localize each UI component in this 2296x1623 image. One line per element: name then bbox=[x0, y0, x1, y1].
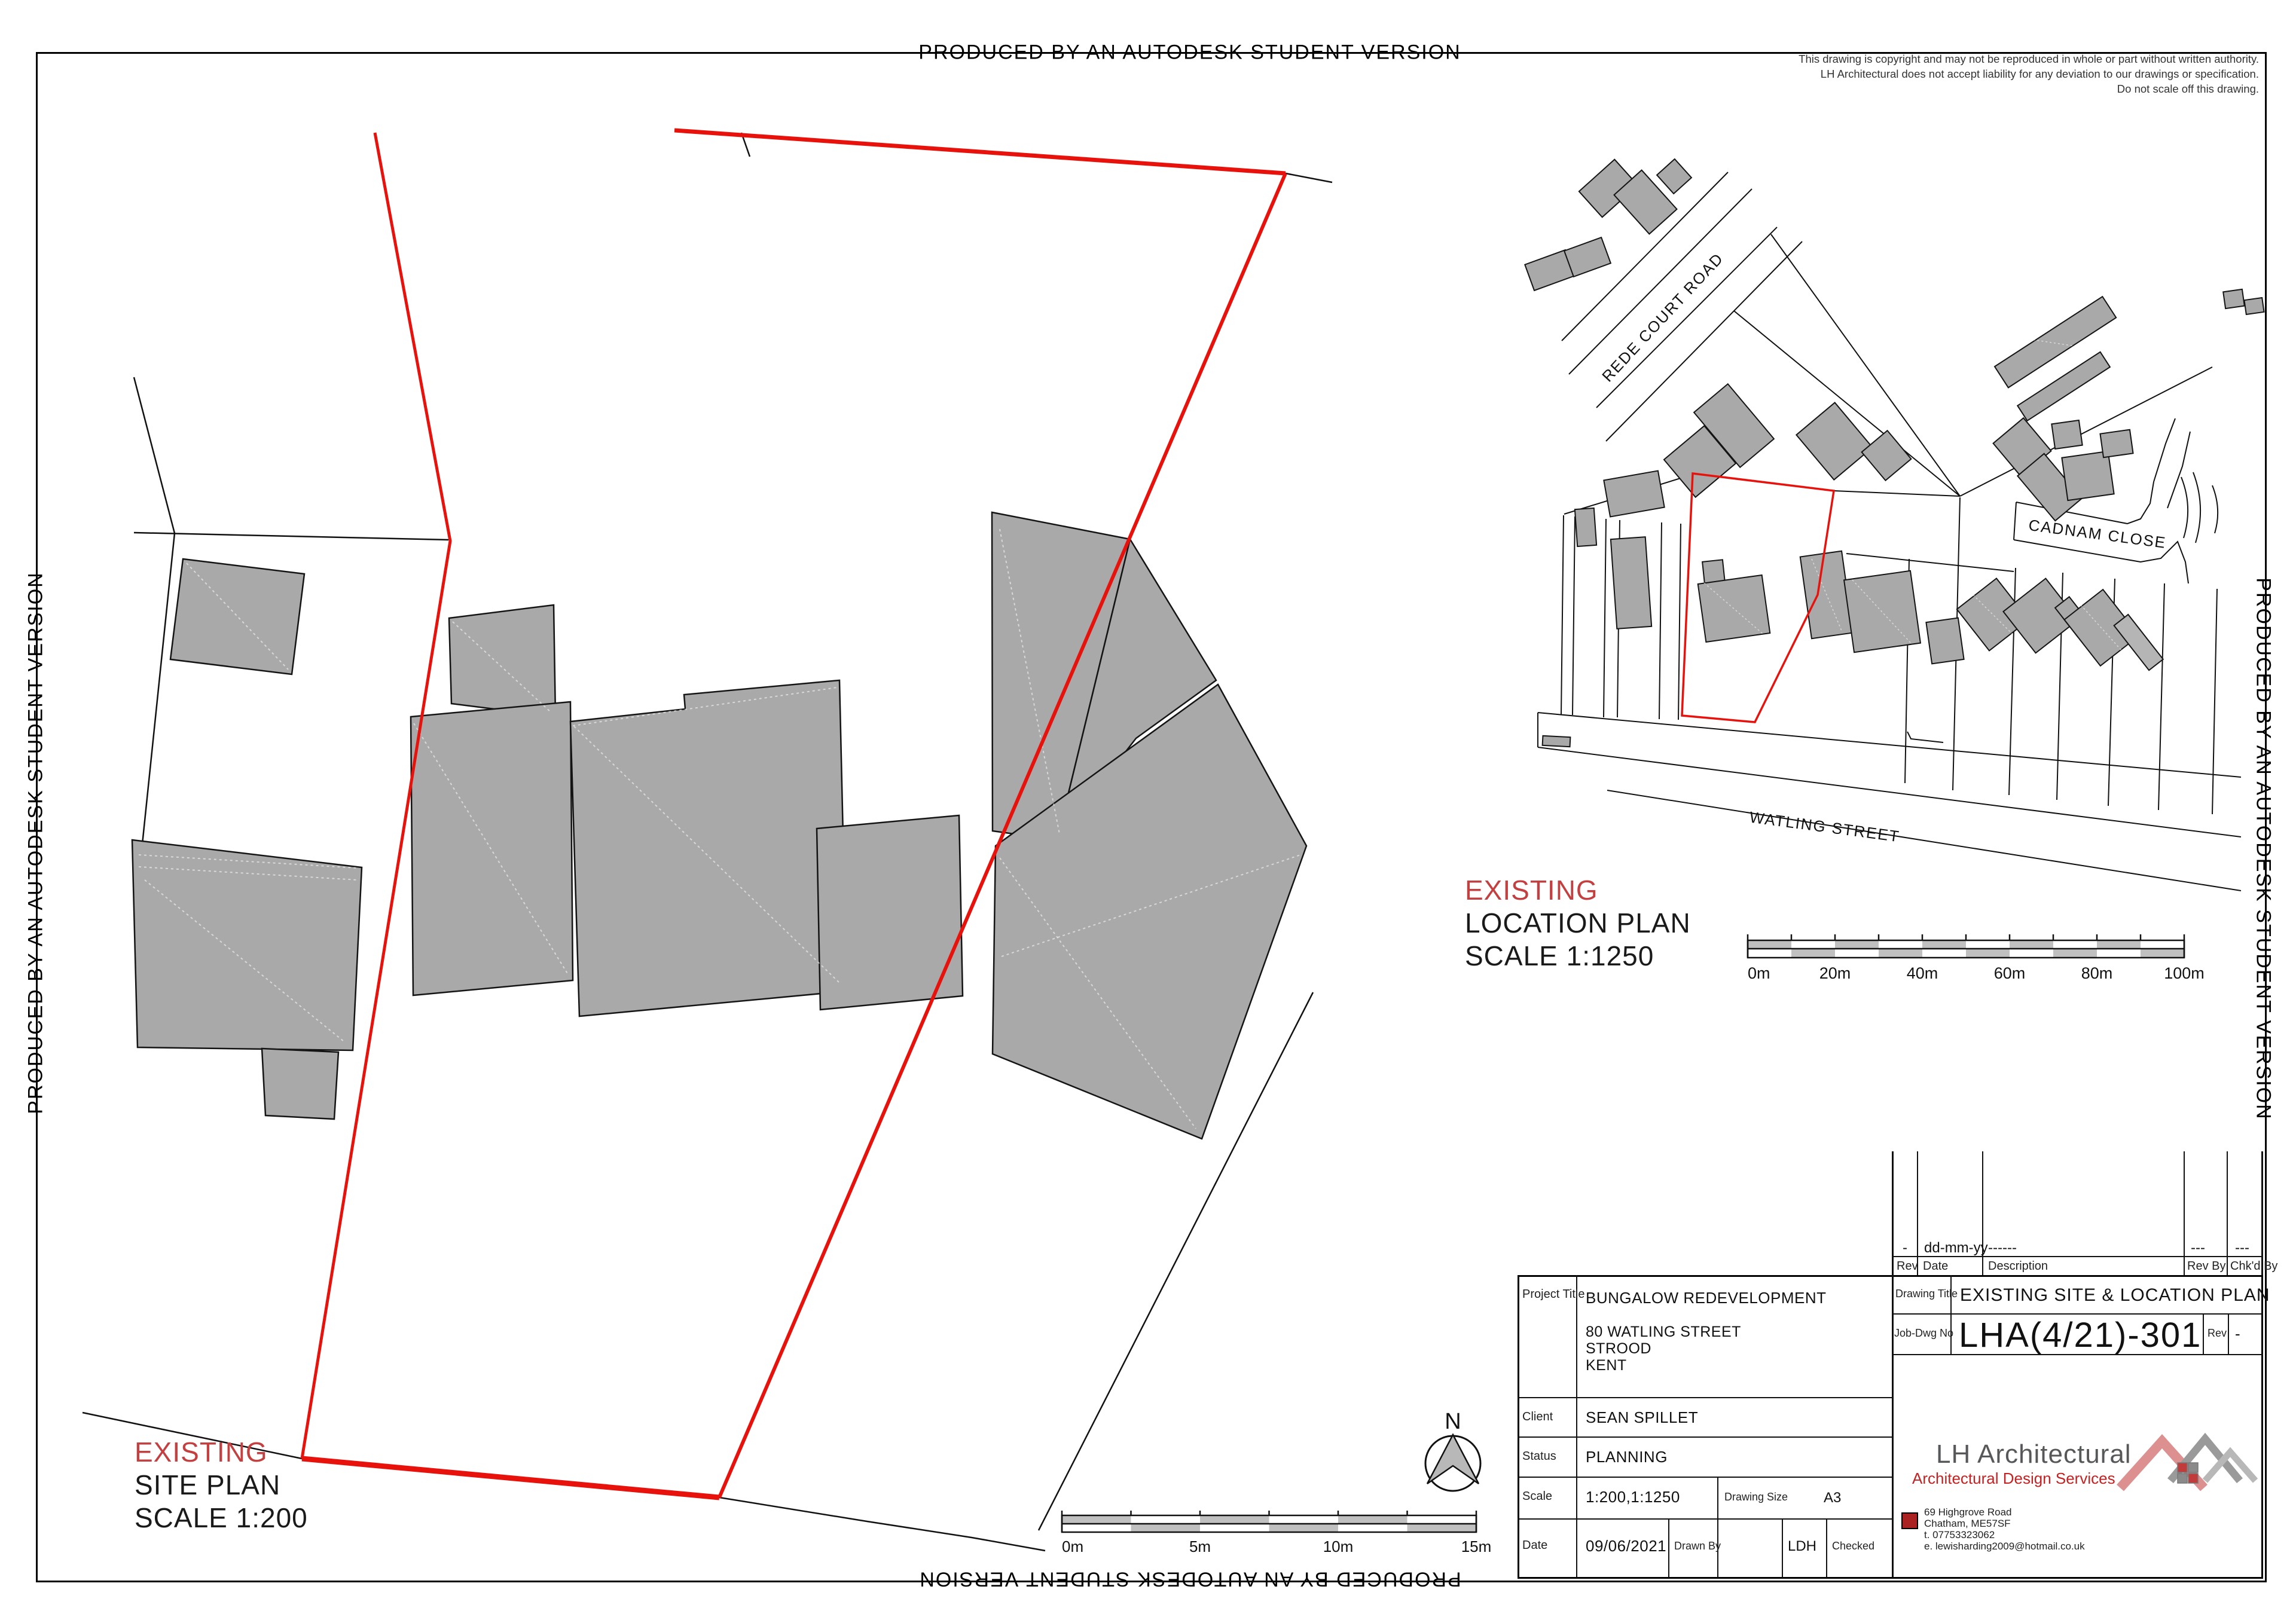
site-existing-label: EXISTING bbox=[135, 1436, 308, 1469]
rev-header-chkby: Chk'd By bbox=[2230, 1260, 2277, 1273]
rev-header-date: Date bbox=[1923, 1260, 1948, 1273]
site-scale-label: SCALE 1:200 bbox=[135, 1502, 308, 1535]
address-line-1: 80 WATLING STREET bbox=[1586, 1324, 1741, 1340]
project-title-label: Project Title bbox=[1522, 1288, 1584, 1301]
rev-row-chkby: --- bbox=[2235, 1240, 2249, 1257]
drawing-sheet: { "page": { "watermark": "PRODUCED BY AN… bbox=[0, 0, 2296, 1623]
client-value: SEAN SPILLET bbox=[1586, 1408, 1698, 1427]
rev-header-rev: Rev bbox=[1897, 1260, 1918, 1273]
firm-address-line-3: t. 07753323062 bbox=[1924, 1529, 2085, 1541]
project-title-value: BUNGALOW REDEVELOPMENT bbox=[1586, 1289, 1827, 1307]
title-block: - dd-mm-yy ------ --- --- Rev Date Descr… bbox=[1518, 1151, 2263, 1579]
rev-row-date: dd-mm-yy bbox=[1924, 1240, 1988, 1257]
copyright-note: This drawing is copyright and may not be… bbox=[1799, 51, 2259, 96]
watermark-top: PRODUCED BY AN AUTODESK STUDENT VERSION bbox=[918, 41, 1461, 65]
status-value: PLANNING bbox=[1586, 1448, 1668, 1466]
address-line-2: STROOD bbox=[1586, 1340, 1741, 1357]
watermark-bottom: PRODUCED BY AN AUTODESK STUDENT VERSION bbox=[918, 1567, 1461, 1591]
checked-label: Checked bbox=[1832, 1540, 1874, 1552]
client-label: Client bbox=[1522, 1410, 1553, 1424]
location-scale-label: SCALE 1:1250 bbox=[1465, 940, 1691, 973]
rev-row-rev: - bbox=[1903, 1240, 1907, 1257]
job-dwg-label: Job-Dwg No bbox=[1894, 1327, 1953, 1340]
project-address: 80 WATLING STREET STROOD KENT bbox=[1586, 1324, 1741, 1374]
drawing-size-value: A3 bbox=[1824, 1490, 1841, 1506]
logo-roofs bbox=[2120, 1439, 2255, 1488]
rev-value: - bbox=[2235, 1325, 2240, 1343]
date-value: 09/06/2021 bbox=[1586, 1537, 1666, 1555]
drawing-title-label: Drawing Title bbox=[1895, 1288, 1958, 1300]
rev-row-revby: --- bbox=[2191, 1240, 2205, 1257]
address-line-3: KENT bbox=[1586, 1357, 1741, 1374]
scale-label: Scale bbox=[1522, 1490, 1552, 1503]
site-title-label: SITE PLAN bbox=[135, 1469, 308, 1502]
firm-tagline: Architectural Design Services bbox=[1912, 1469, 2115, 1488]
location-plan-caption: EXISTING LOCATION PLAN SCALE 1:1250 bbox=[1465, 874, 1691, 973]
firm-address-line-1: 69 Highgrove Road bbox=[1924, 1506, 2085, 1518]
watermark-right: PRODUCED BY AN AUTODESK STUDENT VERSION bbox=[2252, 577, 2275, 1120]
copyright-line-2: LH Architectural does not accept liabili… bbox=[1799, 66, 2259, 81]
rev-row-desc: ------ bbox=[1988, 1240, 2017, 1257]
copyright-line-1: This drawing is copyright and may not be… bbox=[1799, 51, 2259, 66]
date-label: Date bbox=[1522, 1539, 1547, 1552]
firm-address-line-4: e. lewisharding2009@hotmail.co.uk bbox=[1924, 1541, 2085, 1552]
status-label: Status bbox=[1522, 1450, 1556, 1463]
location-title-label: LOCATION PLAN bbox=[1465, 907, 1691, 940]
watermark-left: PRODUCED BY AN AUTODESK STUDENT VERSION bbox=[25, 571, 48, 1114]
drawing-size-label: Drawing Size bbox=[1724, 1491, 1788, 1503]
rev-label: Rev bbox=[2208, 1327, 2227, 1340]
drawing-title-value: EXISTING SITE & LOCATION PLAN bbox=[1960, 1285, 2270, 1306]
drawn-by-value: LDH bbox=[1788, 1538, 1816, 1555]
firm-address-line-2: Chatham, ME57SF bbox=[1924, 1518, 2085, 1529]
rev-header-revby: Rev By bbox=[2187, 1260, 2225, 1273]
firm-logo bbox=[2115, 1423, 2259, 1495]
location-existing-label: EXISTING bbox=[1465, 874, 1691, 907]
site-plan-caption: EXISTING SITE PLAN SCALE 1:200 bbox=[135, 1436, 308, 1535]
copyright-line-3: Do not scale off this drawing. bbox=[1799, 81, 2259, 96]
scale-value: 1:200,1:1250 bbox=[1586, 1488, 1680, 1506]
rev-header-desc: Description bbox=[1988, 1260, 2048, 1273]
firm-address: 69 Highgrove Road Chatham, ME57SF t. 077… bbox=[1924, 1506, 2085, 1552]
firm-name: LH Architectural bbox=[1936, 1439, 2132, 1469]
address-bullet bbox=[1901, 1512, 1918, 1529]
job-dwg-value: LHA(4/21)-301 bbox=[1959, 1315, 2202, 1355]
drawn-by-label: Drawn By bbox=[1674, 1540, 1721, 1552]
